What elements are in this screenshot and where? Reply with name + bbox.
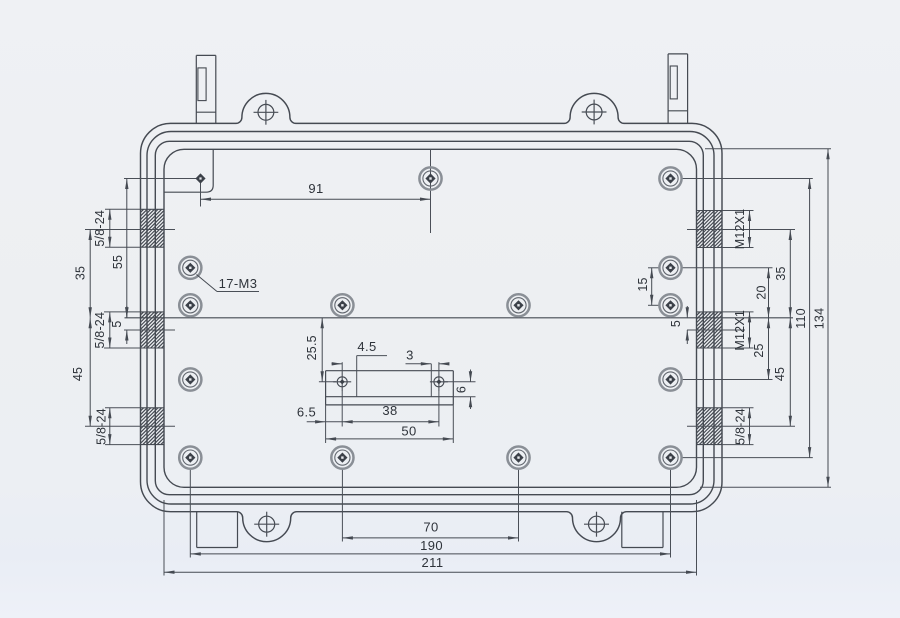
svg-text:45: 45 <box>773 367 787 381</box>
svg-text:70: 70 <box>423 519 438 534</box>
svg-text:50: 50 <box>401 423 416 438</box>
svg-text:5/8-24: 5/8-24 <box>93 210 107 247</box>
svg-text:35: 35 <box>774 266 788 280</box>
svg-text:35: 35 <box>73 266 87 280</box>
svg-text:5: 5 <box>669 320 683 327</box>
svg-text:4.5: 4.5 <box>357 339 376 354</box>
svg-text:190: 190 <box>420 538 443 553</box>
svg-text:M12X1: M12X1 <box>733 310 747 351</box>
svg-text:211: 211 <box>422 555 444 570</box>
svg-text:5/8-24: 5/8-24 <box>93 312 107 349</box>
svg-text:17-M3: 17-M3 <box>219 276 258 291</box>
svg-text:55: 55 <box>111 255 125 269</box>
svg-text:45: 45 <box>71 367 85 381</box>
svg-text:5/8-24: 5/8-24 <box>94 408 108 445</box>
svg-text:3: 3 <box>406 347 414 362</box>
svg-text:134: 134 <box>812 308 826 329</box>
svg-text:5/8-24: 5/8-24 <box>733 408 747 445</box>
svg-text:15: 15 <box>636 277 650 291</box>
svg-text:91: 91 <box>308 181 323 196</box>
svg-text:6.5: 6.5 <box>297 404 316 419</box>
svg-text:110: 110 <box>794 308 808 329</box>
svg-text:M12X1: M12X1 <box>733 209 747 250</box>
svg-text:38: 38 <box>382 403 397 418</box>
svg-text:20: 20 <box>754 285 768 299</box>
svg-text:25.5: 25.5 <box>305 335 319 360</box>
svg-text:6: 6 <box>454 386 468 393</box>
svg-text:25: 25 <box>752 343 766 357</box>
svg-text:5: 5 <box>110 320 124 327</box>
